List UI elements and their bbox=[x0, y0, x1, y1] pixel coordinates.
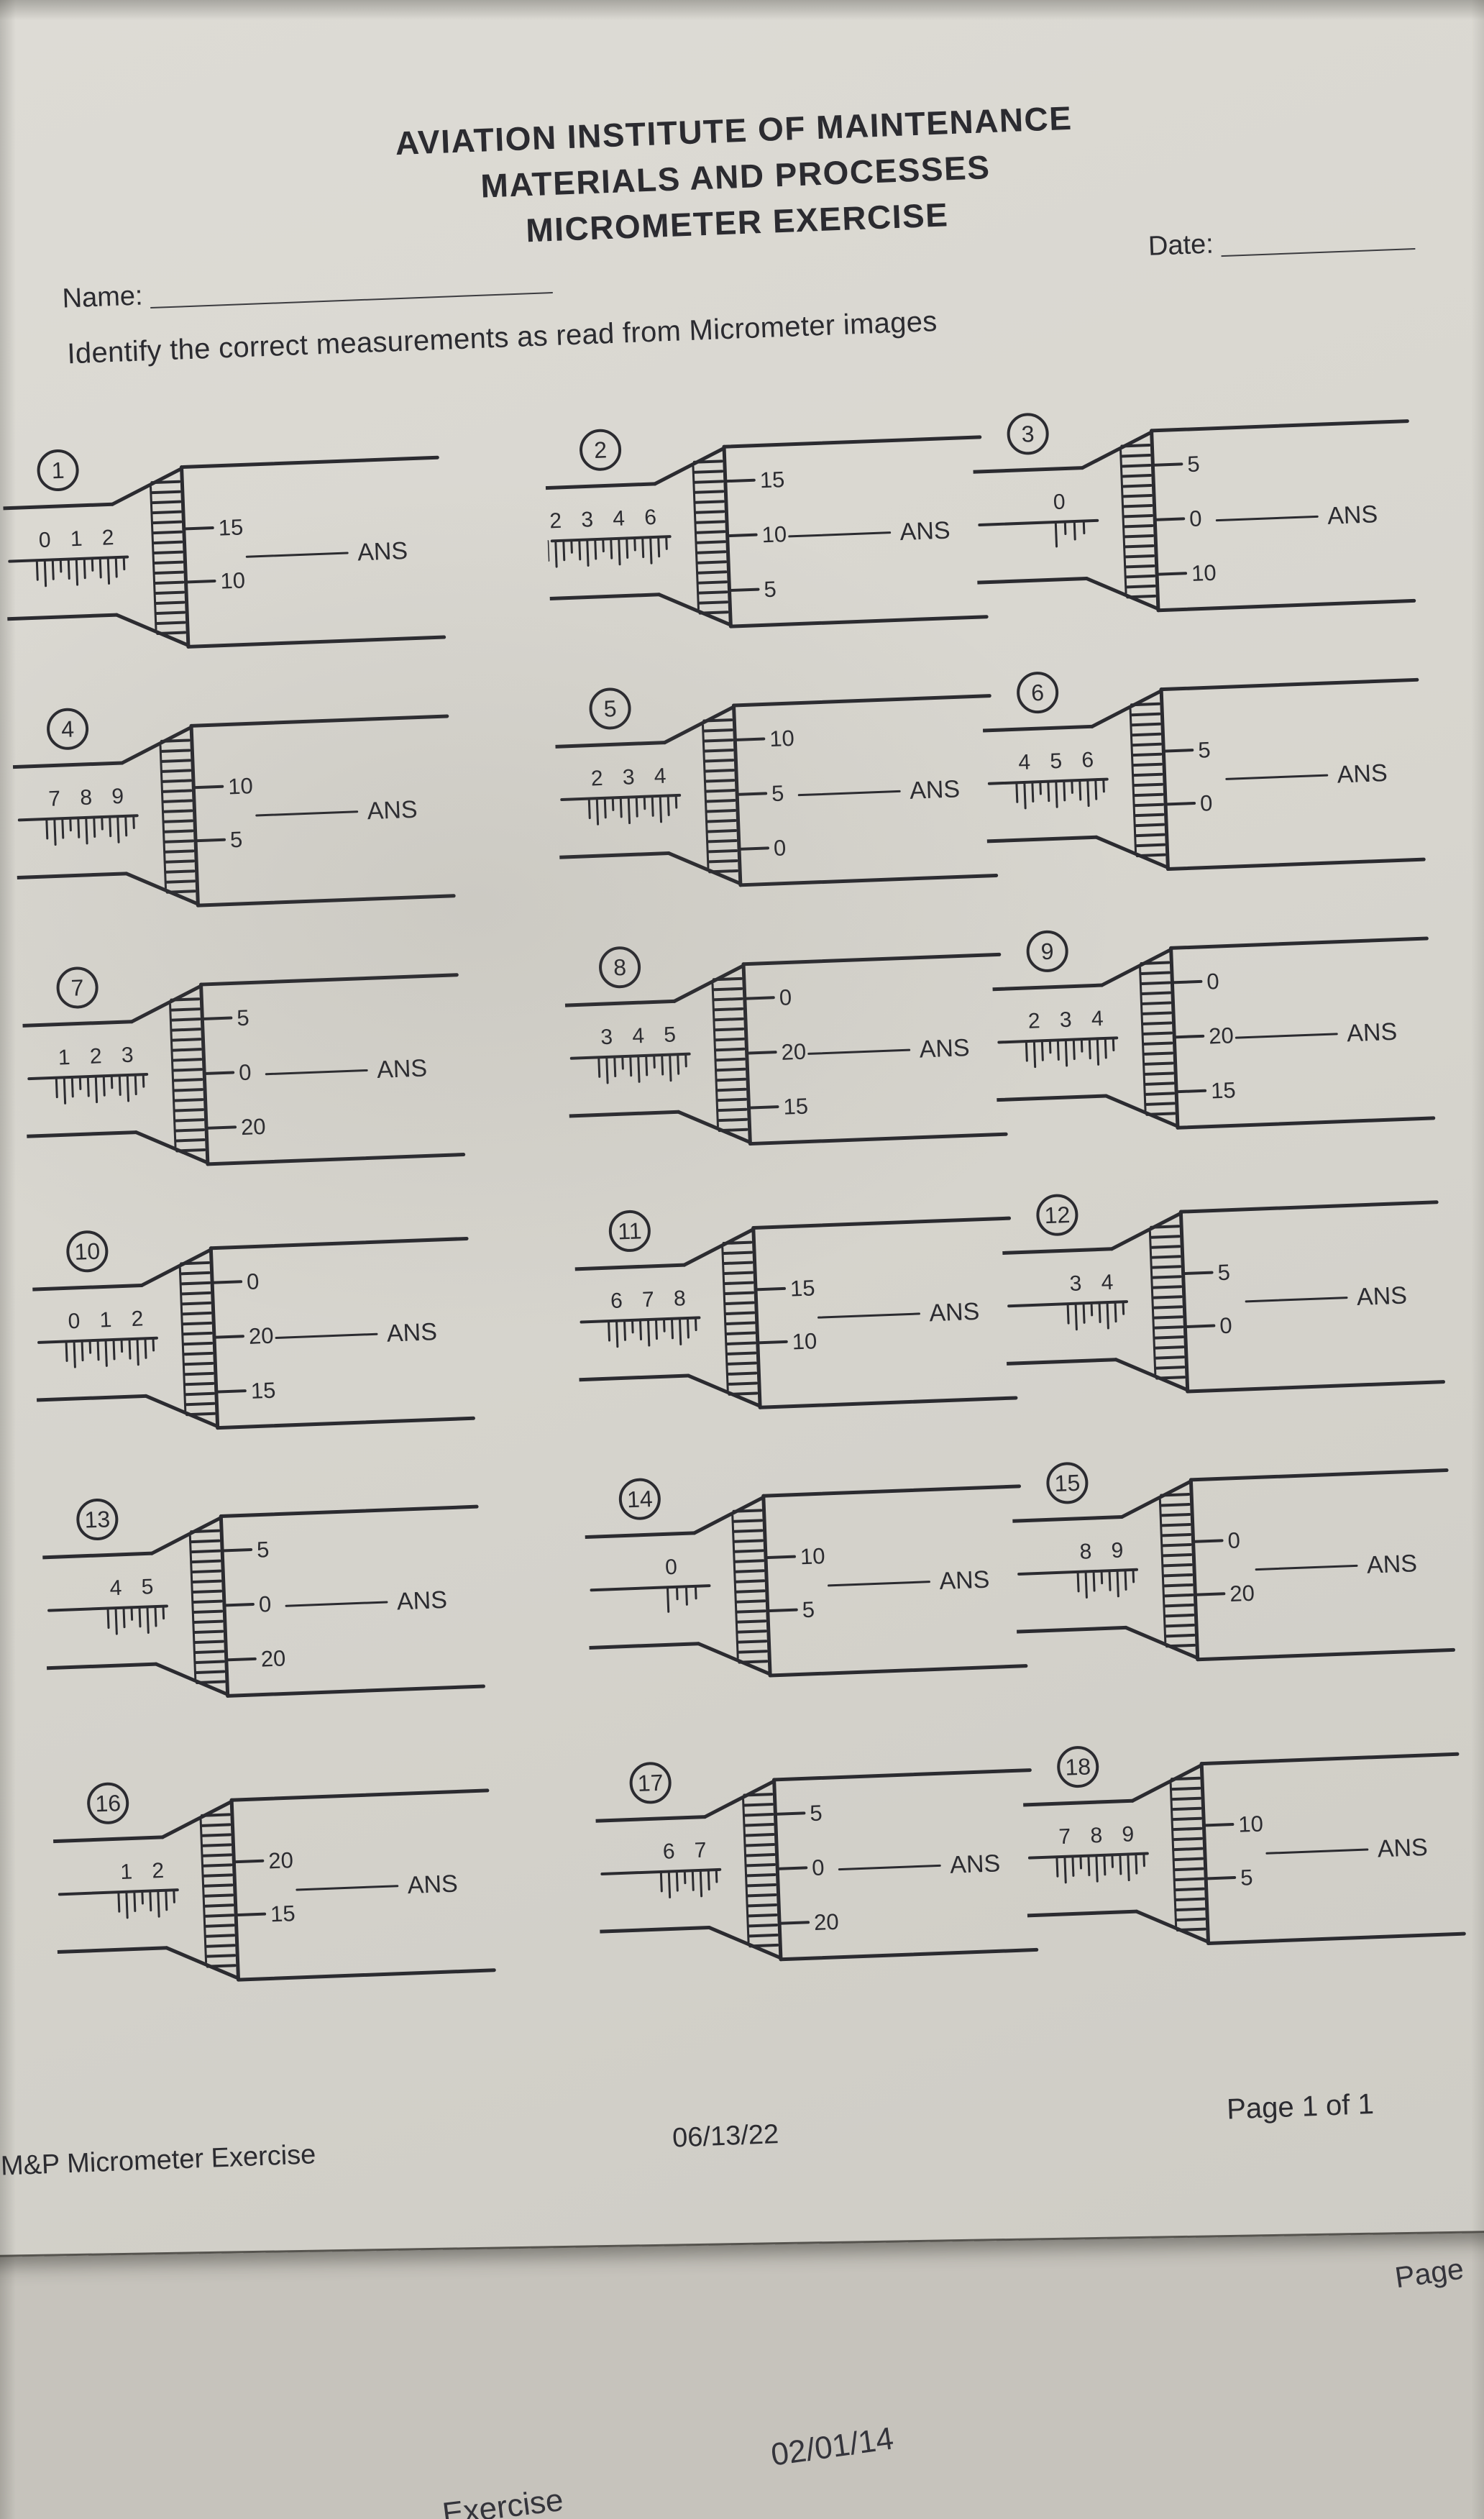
svg-text:15: 15 bbox=[783, 1094, 809, 1120]
svg-text:5: 5 bbox=[237, 1005, 250, 1031]
svg-text:10: 10 bbox=[1238, 1811, 1264, 1837]
under-sheet-partial-text: Exercise bbox=[441, 2482, 566, 2519]
footer-date: 06/13/22 bbox=[672, 2119, 779, 2154]
svg-text:0: 0 bbox=[1053, 490, 1066, 515]
svg-text:ANS: ANS bbox=[376, 1054, 427, 1084]
problem-2: 2234615105ANS bbox=[544, 411, 1012, 651]
micrometer-figure: 18789105ANS bbox=[1021, 1727, 1484, 1967]
svg-text:1: 1 bbox=[58, 1046, 70, 1070]
svg-text:6: 6 bbox=[662, 1839, 675, 1864]
svg-text:5: 5 bbox=[1198, 737, 1212, 763]
ans-blank: ANS bbox=[1245, 1281, 1407, 1315]
svg-text:4: 4 bbox=[654, 764, 667, 789]
problem-17: 17675020ANS bbox=[593, 1743, 1061, 1983]
svg-text:20: 20 bbox=[1209, 1023, 1235, 1048]
svg-text:8: 8 bbox=[1079, 1540, 1092, 1564]
ans-blank: ANS bbox=[266, 1054, 428, 1087]
micrometer-figure: 923402015ANS bbox=[990, 912, 1458, 1152]
svg-text:5: 5 bbox=[810, 1800, 823, 1826]
svg-text:5: 5 bbox=[1217, 1260, 1231, 1286]
svg-text:7: 7 bbox=[1058, 1825, 1071, 1850]
svg-text:20: 20 bbox=[813, 1909, 839, 1935]
svg-text:1: 1 bbox=[51, 457, 65, 484]
svg-text:2: 2 bbox=[1027, 1009, 1040, 1033]
svg-text:4: 4 bbox=[613, 507, 626, 531]
svg-text:3: 3 bbox=[581, 508, 594, 532]
svg-text:8: 8 bbox=[80, 786, 93, 810]
ans-blank: ANS bbox=[839, 1850, 1001, 1883]
svg-text:20: 20 bbox=[1229, 1581, 1255, 1606]
svg-text:ANS: ANS bbox=[1366, 1550, 1417, 1579]
svg-text:ANS: ANS bbox=[950, 1850, 1001, 1879]
svg-text:0: 0 bbox=[773, 835, 787, 861]
problem-14: 140105ANS bbox=[583, 1460, 1051, 1700]
problem-9: 923402015ANS bbox=[990, 912, 1458, 1152]
svg-text:10: 10 bbox=[74, 1238, 101, 1265]
svg-text:ANS: ANS bbox=[1356, 1281, 1407, 1311]
ans-blank: ANS bbox=[1266, 1834, 1428, 1867]
svg-text:10: 10 bbox=[769, 726, 795, 751]
footer-doc-title: M&P Micrometer Exercise bbox=[0, 2139, 316, 2182]
svg-text:ANS: ANS bbox=[386, 1318, 437, 1348]
svg-text:0: 0 bbox=[38, 528, 51, 552]
svg-text:0: 0 bbox=[1227, 1527, 1241, 1553]
svg-text:2: 2 bbox=[590, 767, 603, 791]
svg-text:7: 7 bbox=[694, 1839, 707, 1863]
micrometer-figure: 834502015ANS bbox=[563, 928, 1031, 1168]
svg-text:20: 20 bbox=[260, 1645, 286, 1671]
svg-text:0: 0 bbox=[812, 1855, 825, 1880]
svg-text:10: 10 bbox=[220, 567, 246, 593]
svg-text:2: 2 bbox=[593, 436, 607, 463]
svg-text:8: 8 bbox=[673, 1286, 686, 1311]
micrometer-figure: 4789105ANS bbox=[11, 690, 479, 930]
svg-text:15: 15 bbox=[218, 514, 244, 540]
svg-text:8: 8 bbox=[613, 954, 627, 981]
svg-text:ANS: ANS bbox=[1377, 1834, 1428, 1863]
micrometer-figure: 13455020ANS bbox=[40, 1480, 508, 1720]
svg-text:15: 15 bbox=[1210, 1077, 1236, 1103]
micrometer-figure: 305010ANS bbox=[971, 394, 1439, 634]
svg-text:2: 2 bbox=[89, 1044, 102, 1069]
svg-text:5: 5 bbox=[764, 577, 777, 603]
problem-8: 834502015ANS bbox=[563, 928, 1031, 1168]
problem-12: 123450ANS bbox=[1000, 1176, 1468, 1416]
ans-blank: ANS bbox=[1236, 1018, 1398, 1051]
problem-1: 10121510ANS bbox=[1, 431, 469, 671]
under-sheet-date: 02/01/14 bbox=[769, 2420, 896, 2473]
problem-5: 52341050ANS bbox=[553, 669, 1021, 909]
svg-text:0: 0 bbox=[1219, 1313, 1233, 1339]
micrometer-figure: 123450ANS bbox=[1000, 1176, 1468, 1416]
svg-text:15: 15 bbox=[270, 1901, 296, 1926]
ans-blank: ANS bbox=[275, 1318, 437, 1351]
svg-text:1: 1 bbox=[99, 1308, 112, 1332]
svg-text:5: 5 bbox=[802, 1597, 815, 1623]
svg-text:ANS: ANS bbox=[367, 796, 418, 826]
svg-text:4: 4 bbox=[1091, 1007, 1104, 1031]
problem-11: 116781510ANS bbox=[573, 1192, 1041, 1432]
svg-text:ANS: ANS bbox=[396, 1586, 447, 1616]
svg-text:4: 4 bbox=[109, 1576, 122, 1601]
ans-blank: ANS bbox=[247, 537, 408, 570]
problems-grid: 10121510ANS2234615105ANS305010ANS4789105… bbox=[0, 0, 1484, 2041]
micrometer-figure: 2234615105ANS bbox=[544, 411, 1012, 651]
svg-text:2: 2 bbox=[549, 509, 562, 534]
problem-4: 4789105ANS bbox=[11, 690, 479, 930]
svg-text:2: 2 bbox=[131, 1307, 144, 1331]
svg-text:0: 0 bbox=[68, 1309, 81, 1334]
micrometer-figure: 10121510ANS bbox=[1, 431, 469, 671]
worksheet-content: AVIATION INSTITUTE OF MAINTENANCE MATERI… bbox=[0, 0, 1484, 2385]
svg-text:ANS: ANS bbox=[899, 517, 951, 547]
svg-text:1: 1 bbox=[70, 527, 83, 552]
svg-text:18: 18 bbox=[1065, 1753, 1091, 1780]
micrometer-figure: 116781510ANS bbox=[573, 1192, 1041, 1432]
problem-10: 1001202015ANS bbox=[30, 1212, 498, 1452]
svg-text:5: 5 bbox=[256, 1537, 270, 1563]
svg-text:15: 15 bbox=[789, 1275, 815, 1301]
svg-text:5: 5 bbox=[1050, 749, 1063, 774]
svg-text:3: 3 bbox=[1069, 1271, 1082, 1296]
svg-text:6: 6 bbox=[1031, 680, 1045, 706]
ans-blank: ANS bbox=[789, 517, 951, 550]
svg-text:ANS: ANS bbox=[939, 1566, 990, 1596]
svg-text:7: 7 bbox=[48, 787, 61, 811]
micrometer-figure: 17675020ANS bbox=[593, 1743, 1061, 1983]
svg-text:ANS: ANS bbox=[929, 1298, 980, 1327]
svg-text:16: 16 bbox=[95, 1790, 122, 1816]
svg-text:3: 3 bbox=[121, 1043, 134, 1068]
svg-text:9: 9 bbox=[1122, 1822, 1135, 1847]
svg-text:3: 3 bbox=[1059, 1008, 1072, 1033]
svg-text:14: 14 bbox=[626, 1486, 653, 1512]
ans-blank: ANS bbox=[1226, 759, 1388, 792]
svg-text:0: 0 bbox=[1199, 790, 1213, 816]
svg-text:10: 10 bbox=[228, 773, 254, 799]
svg-text:3: 3 bbox=[600, 1025, 613, 1050]
svg-text:6: 6 bbox=[610, 1289, 623, 1313]
svg-text:5: 5 bbox=[229, 827, 243, 853]
svg-text:ANS: ANS bbox=[357, 537, 408, 567]
svg-text:13: 13 bbox=[84, 1506, 111, 1532]
svg-text:3: 3 bbox=[1021, 421, 1035, 447]
svg-text:0: 0 bbox=[1206, 969, 1220, 995]
svg-text:20: 20 bbox=[268, 1847, 294, 1873]
svg-text:0: 0 bbox=[779, 984, 792, 1010]
svg-text:17: 17 bbox=[637, 1770, 664, 1796]
micrometer-figure: 1001202015ANS bbox=[30, 1212, 498, 1452]
svg-text:0: 0 bbox=[246, 1268, 260, 1294]
svg-text:ANS: ANS bbox=[909, 775, 960, 805]
micrometer-figure: 71235020ANS bbox=[20, 948, 488, 1188]
svg-text:4: 4 bbox=[632, 1024, 645, 1048]
ans-blank: ANS bbox=[296, 1870, 458, 1903]
svg-text:5: 5 bbox=[603, 695, 617, 722]
problem-3: 305010ANS bbox=[971, 394, 1439, 634]
svg-text:5: 5 bbox=[1240, 1865, 1254, 1891]
svg-text:5: 5 bbox=[771, 780, 785, 806]
svg-text:0: 0 bbox=[258, 1591, 272, 1617]
ans-blank: ANS bbox=[1255, 1550, 1417, 1583]
svg-text:2: 2 bbox=[101, 526, 114, 550]
svg-text:9: 9 bbox=[1040, 938, 1054, 965]
svg-text:6: 6 bbox=[1081, 748, 1094, 772]
svg-text:ANS: ANS bbox=[919, 1034, 970, 1064]
svg-text:20: 20 bbox=[248, 1323, 274, 1349]
svg-text:0: 0 bbox=[239, 1060, 252, 1086]
ans-blank: ANS bbox=[818, 1298, 980, 1331]
svg-text:10: 10 bbox=[800, 1543, 825, 1569]
svg-text:ANS: ANS bbox=[407, 1870, 458, 1900]
problem-6: 645650ANS bbox=[981, 653, 1449, 893]
problem-18: 18789105ANS bbox=[1021, 1727, 1484, 1967]
svg-text:8: 8 bbox=[1090, 1824, 1103, 1848]
svg-text:ANS: ANS bbox=[1347, 1018, 1398, 1048]
micrometer-figure: 645650ANS bbox=[981, 653, 1449, 893]
micrometer-figure: 52341050ANS bbox=[553, 669, 1021, 909]
photo-background: Page 02/01/14 Exercise AVIATION INSTITUT… bbox=[0, 0, 1484, 2519]
svg-text:ANS: ANS bbox=[1337, 759, 1388, 789]
svg-text:ANS: ANS bbox=[1327, 500, 1378, 530]
svg-text:10: 10 bbox=[761, 521, 787, 547]
svg-text:5: 5 bbox=[141, 1575, 154, 1599]
problem-16: 16122015ANS bbox=[51, 1764, 519, 2004]
svg-text:11: 11 bbox=[618, 1217, 643, 1244]
svg-text:7: 7 bbox=[641, 1288, 654, 1312]
svg-text:5: 5 bbox=[664, 1023, 677, 1047]
svg-text:10: 10 bbox=[1191, 560, 1217, 586]
svg-text:4: 4 bbox=[61, 716, 75, 742]
svg-text:0: 0 bbox=[664, 1555, 677, 1580]
svg-text:20: 20 bbox=[240, 1114, 266, 1140]
svg-text:6: 6 bbox=[644, 506, 657, 530]
ans-blank: ANS bbox=[285, 1586, 447, 1619]
ans-blank: ANS bbox=[808, 1034, 970, 1067]
svg-text:9: 9 bbox=[111, 785, 124, 809]
ans-blank: ANS bbox=[799, 775, 961, 808]
svg-text:15: 15 bbox=[1054, 1470, 1081, 1496]
problem-13: 13455020ANS bbox=[40, 1480, 508, 1720]
svg-text:20: 20 bbox=[781, 1039, 807, 1065]
problem-7: 71235020ANS bbox=[20, 948, 488, 1188]
micrometer-figure: 1589020ANS bbox=[1010, 1443, 1478, 1683]
svg-text:5: 5 bbox=[1187, 451, 1201, 477]
svg-text:15: 15 bbox=[250, 1378, 276, 1404]
svg-text:2: 2 bbox=[152, 1859, 165, 1883]
ans-blank: ANS bbox=[1217, 500, 1378, 534]
svg-text:9: 9 bbox=[1111, 1539, 1124, 1563]
footer-page: Page 1 of 1 bbox=[1226, 2088, 1374, 2126]
svg-text:3: 3 bbox=[622, 765, 635, 790]
svg-text:0: 0 bbox=[1189, 506, 1203, 531]
svg-text:12: 12 bbox=[1044, 1202, 1071, 1228]
svg-text:4: 4 bbox=[1018, 751, 1031, 775]
ans-blank: ANS bbox=[828, 1566, 990, 1599]
problem-15: 1589020ANS bbox=[1010, 1443, 1478, 1683]
svg-text:1: 1 bbox=[120, 1860, 133, 1885]
micrometer-figure: 16122015ANS bbox=[51, 1764, 519, 2004]
micrometer-figure: 140105ANS bbox=[583, 1460, 1051, 1700]
ans-blank: ANS bbox=[256, 796, 418, 829]
svg-text:15: 15 bbox=[759, 467, 785, 493]
svg-text:10: 10 bbox=[792, 1328, 817, 1354]
svg-text:4: 4 bbox=[1101, 1271, 1114, 1295]
svg-text:7: 7 bbox=[70, 974, 84, 1001]
